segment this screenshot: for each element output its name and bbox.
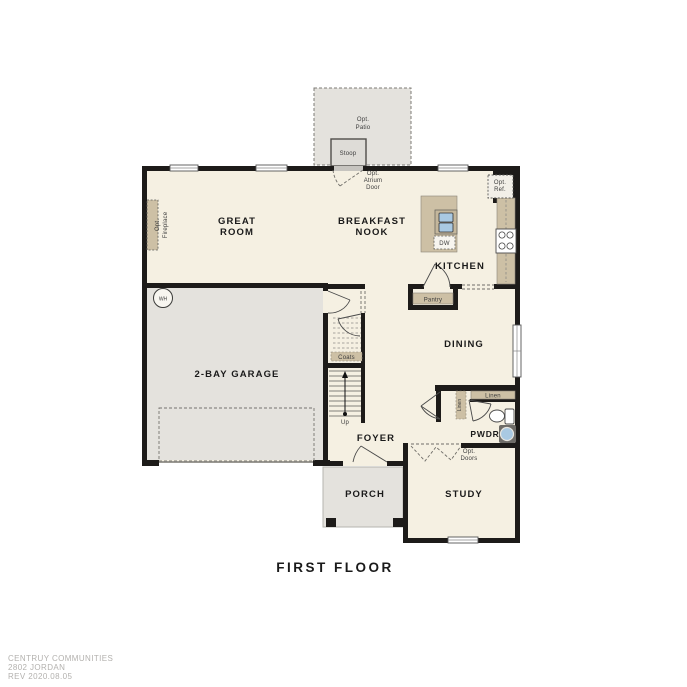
sink-bowl-icon (439, 223, 453, 232)
kitchen-label: KITCHEN (435, 261, 485, 272)
atrium-door-opening (334, 166, 363, 171)
footer-plan: 2802 JORDAN (8, 663, 65, 672)
porch-post-right (393, 518, 403, 527)
garage-door-opening (323, 291, 328, 313)
opt-ref-label-2: Ref. (494, 187, 506, 193)
great-room-label-2: ROOM (220, 227, 254, 238)
breakfast-nook-label-2: NOOK (356, 227, 389, 238)
garage-label: 2-BAY GARAGE (195, 369, 280, 380)
atrium-door-label-3: Door (366, 185, 380, 191)
opt-patio-label-2: Patio (356, 125, 371, 131)
opt-doors-label: Opt. (463, 449, 475, 455)
atrium-door-label: Opt. (367, 171, 379, 177)
atrium-door-label-2: Atrium (364, 178, 383, 184)
toilet-bowl-icon (490, 410, 505, 422)
breakfast-nook-label: BREAKFAST (338, 216, 406, 227)
linen-closet-label: Linen (457, 399, 463, 411)
opt-ref-label: Opt. (494, 180, 506, 186)
study-label: STUDY (445, 489, 483, 500)
pantry-label: Pantry (424, 298, 443, 304)
stove (496, 229, 516, 253)
floor-plan-drawing: GREAT ROOM BREAKFAST NOOK KITCHEN DINING… (0, 0, 687, 687)
porch-label: PORCH (345, 489, 385, 500)
up-arrow-dot-icon (343, 412, 347, 416)
foyer-label: FOYER (357, 433, 395, 444)
front-door-opening (343, 461, 387, 466)
powder-sink-icon (501, 428, 514, 441)
opt-patio-label: Opt. (357, 117, 369, 123)
floor-plan-page: GREAT ROOM BREAKFAST NOOK KITCHEN DINING… (0, 0, 687, 687)
fireplace-label-2: Fireplace (163, 211, 169, 238)
page-title: FIRST FLOOR (276, 560, 394, 575)
sink-bowl-icon (439, 213, 453, 222)
stoop-label: Stoop (340, 151, 357, 157)
toilet-tank-icon (505, 409, 514, 424)
dishwasher-label: DW (439, 241, 450, 247)
footer-builder: CENTRUY COMMUNITIES (8, 654, 113, 663)
linen-hall-label: Linen (485, 394, 501, 400)
dining-label: DINING (444, 339, 484, 350)
powder-label: PWDR (470, 429, 499, 439)
fireplace-label: Opt. (155, 219, 161, 231)
water-heater-label: WH (159, 297, 168, 303)
footer-revision: REV 2020.08.05 (8, 672, 72, 681)
opt-doors-label-2: Doors (460, 456, 477, 462)
great-room-label: GREAT (218, 216, 256, 227)
up-label: Up (341, 420, 350, 426)
coats-label: Coats (338, 355, 355, 361)
porch-post-left (326, 518, 336, 527)
